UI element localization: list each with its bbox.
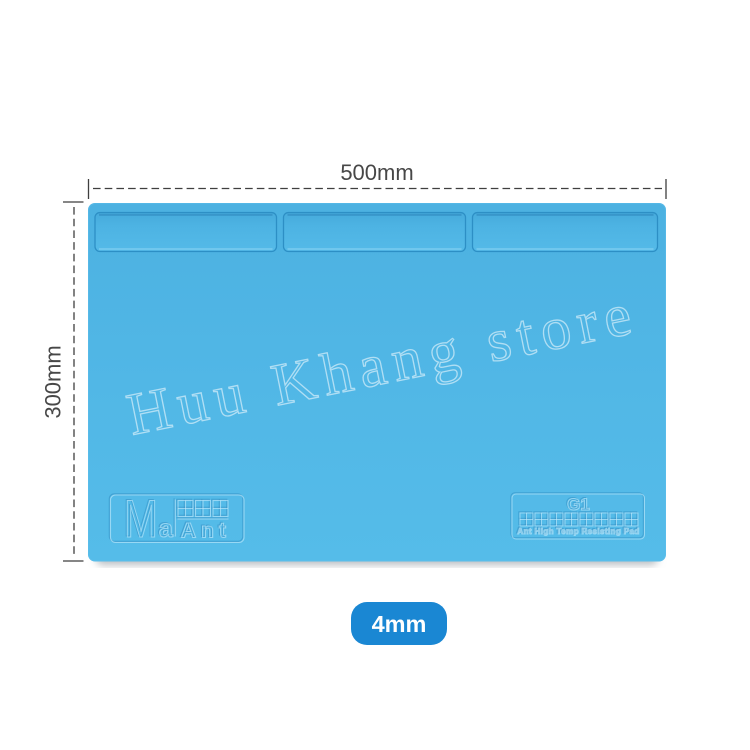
svg-text:M: M — [124, 490, 158, 549]
svg-text:300mm: 300mm — [41, 345, 66, 418]
svg-text:a: a — [159, 515, 174, 543]
svg-text:Ant: Ant — [181, 520, 231, 543]
svg-text:G1: G1 — [567, 495, 590, 514]
svg-text:Ant High Temp Resisting Pad: Ant High Temp Resisting Pad — [517, 527, 639, 536]
svg-text:500mm: 500mm — [340, 160, 413, 185]
svg-text:4mm: 4mm — [372, 611, 427, 637]
